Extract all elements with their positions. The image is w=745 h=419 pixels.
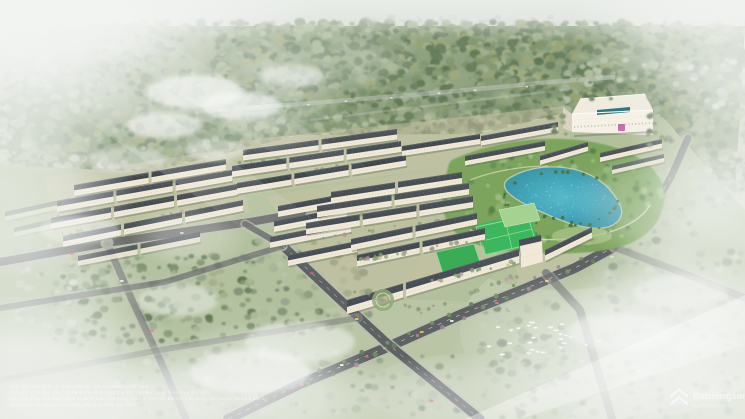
svg-text:Batdongsan: Batdongsan — [693, 391, 745, 402]
svg-text:"Hình ảnh thực khảo và chửa ph: "Hình ảnh thực khảo và chửa phải bản cuố… — [9, 383, 151, 390]
svg-text:và tuân thủ các quy định của B: và tuân thủ các quy định của Ban quản lý… — [9, 401, 137, 408]
svg-text:Hình ảnh minh họa. Việc vận hà: Hình ảnh minh họa. Việc vận hành khu đô … — [9, 389, 210, 396]
svg-text:by PropertyGuru: by PropertyGuru — [693, 403, 727, 408]
svg-text:Các hoạt động kinh doanh/dịch: Các hoạt động kinh doanh/dịch vụ được th… — [9, 395, 267, 402]
